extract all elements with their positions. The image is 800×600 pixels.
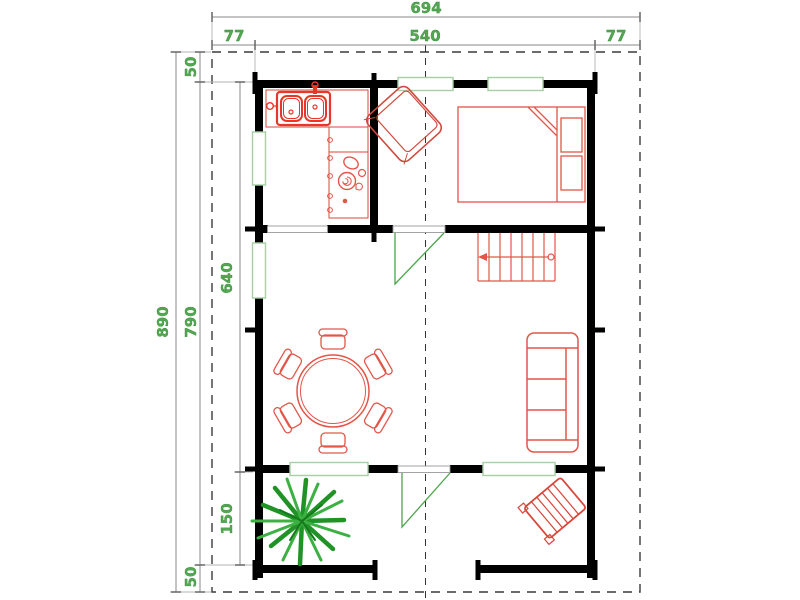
window-left-1 <box>253 132 266 185</box>
window-top-1 <box>398 78 453 91</box>
door-kitchen-leaf <box>268 226 328 233</box>
dining-chairs <box>273 329 394 453</box>
window-bottom-1 <box>290 463 368 476</box>
dim-inner-lower: 150 <box>218 503 236 534</box>
sofa <box>527 333 578 452</box>
window-left-2 <box>253 243 266 298</box>
faucet <box>313 85 317 94</box>
windows <box>253 78 556 476</box>
kitchen-fixtures <box>266 82 368 218</box>
door-swings <box>395 233 450 527</box>
dim-side-top: 50 <box>182 57 200 78</box>
stove-burner <box>339 173 356 190</box>
door-bedroom-swing <box>395 233 444 284</box>
dimension-lines <box>176 17 640 592</box>
window-bottom-2 <box>483 463 555 476</box>
dim-side-main: 790 <box>182 306 200 337</box>
window-top-2 <box>488 78 543 91</box>
dim-top-left: 77 <box>224 27 245 45</box>
dining-table <box>297 355 369 427</box>
floorplan-canvas: 694 77 540 77 890 50 790 50 640 150 <box>0 0 800 600</box>
dim-top-center: 540 <box>409 27 440 45</box>
garden-bench <box>518 474 589 544</box>
bath-fixtures <box>328 138 366 213</box>
door-terrace-leaf <box>398 466 450 473</box>
double-sink <box>267 82 330 125</box>
double-bed <box>458 107 585 202</box>
blanket-fold <box>528 107 557 136</box>
dining-table-set <box>273 329 394 453</box>
door-leaves <box>268 226 451 473</box>
dimension-ticks <box>171 12 640 592</box>
plant <box>252 479 349 564</box>
staircase <box>478 233 555 281</box>
dim-side-total: 890 <box>154 306 172 337</box>
dim-inner-upper: 640 <box>218 262 236 293</box>
dim-top-right: 77 <box>606 27 627 45</box>
door-bedroom-leaf <box>393 226 445 233</box>
dim-top-total: 694 <box>410 0 441 17</box>
dim-side-bottom: 50 <box>182 567 200 588</box>
soap-dispenser <box>267 103 274 110</box>
floorplan-drawing: 694 77 540 77 890 50 790 50 640 150 <box>0 0 800 600</box>
